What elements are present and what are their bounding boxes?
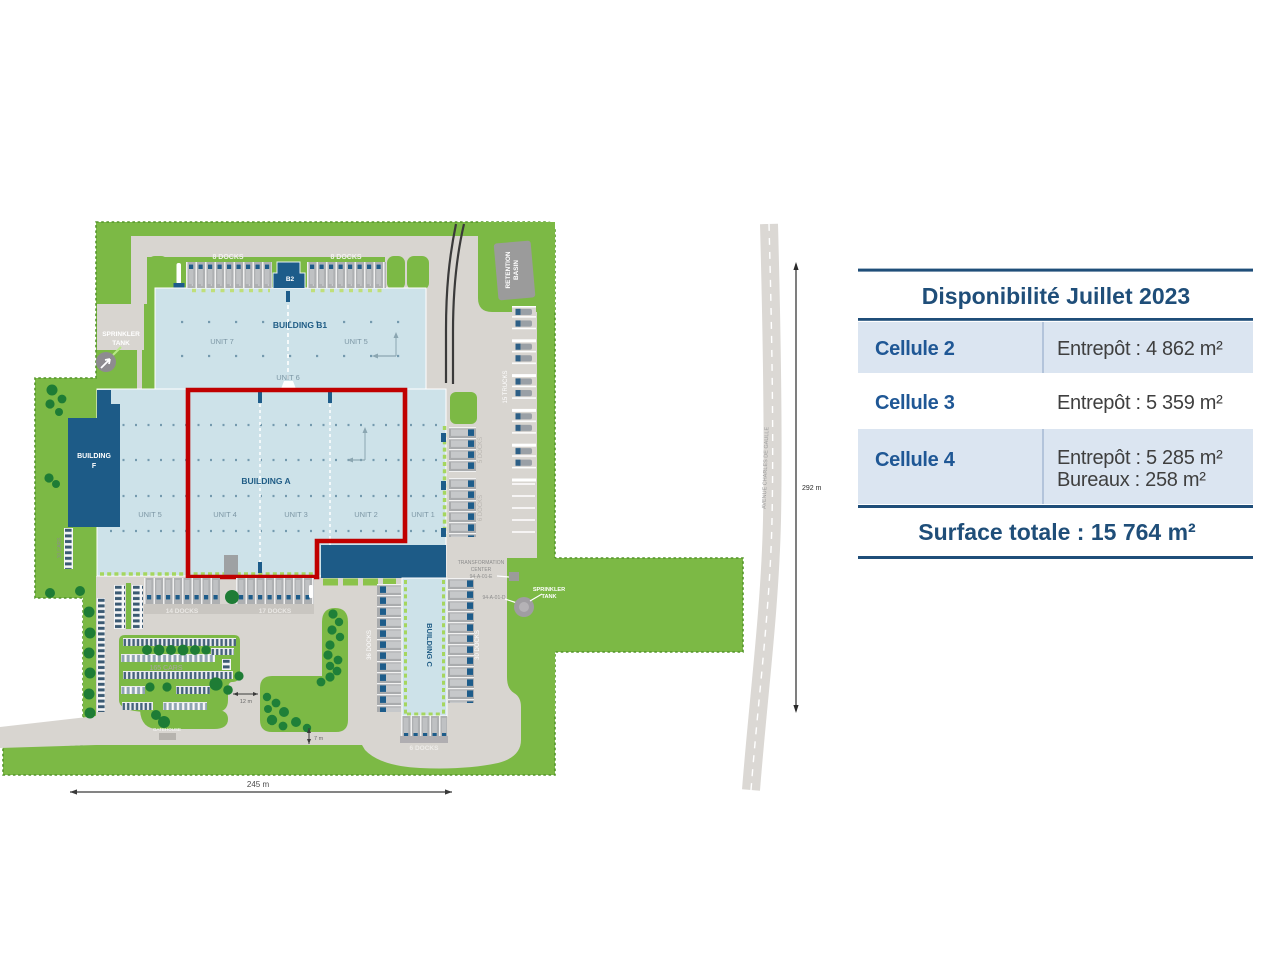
- svg-text:Entrepôt : 5 359 m²: Entrepôt : 5 359 m²: [1057, 392, 1223, 414]
- svg-text:292 m: 292 m: [802, 485, 822, 492]
- svg-text:UNIT 7: UNIT 7: [210, 337, 234, 346]
- svg-text:CENTER: CENTER: [471, 567, 492, 573]
- svg-text:8 DOCKS: 8 DOCKS: [330, 254, 361, 261]
- svg-text:BUILDING C: BUILDING C: [425, 623, 434, 667]
- svg-text:UNIT 2: UNIT 2: [354, 510, 378, 519]
- svg-text:UNIT 3: UNIT 3: [284, 510, 308, 519]
- svg-text:15 TRUCKS: 15 TRUCKS: [503, 371, 509, 404]
- svg-text:Entrepôt : 4 862 m²: Entrepôt : 4 862 m²: [1057, 338, 1223, 360]
- svg-text:B2: B2: [286, 276, 295, 283]
- svg-text:UNIT 1: UNIT 1: [411, 510, 435, 519]
- svg-text:BUILDING A: BUILDING A: [241, 476, 290, 486]
- svg-text:36 DOCKS: 36 DOCKS: [367, 630, 373, 660]
- svg-text:94-A-01-E: 94-A-01-E: [470, 574, 493, 580]
- svg-text:245 m: 245 m: [247, 780, 270, 789]
- svg-text:6 DOCKS: 6 DOCKS: [410, 745, 440, 752]
- svg-text:94-A-01-D: 94-A-01-D: [482, 595, 505, 601]
- svg-text:7 m: 7 m: [314, 736, 324, 742]
- svg-text:UNIT 5: UNIT 5: [138, 510, 162, 519]
- svg-text:10 CARS: 10 CARS: [57, 537, 63, 559]
- svg-text:5 DOCKS: 5 DOCKS: [478, 437, 484, 463]
- svg-text:Cellule 3: Cellule 3: [875, 392, 955, 414]
- svg-text:SPRINKLER: SPRINKLER: [533, 587, 565, 593]
- svg-text:GATEHOUSE: GATEHOUSE: [153, 727, 181, 732]
- svg-text:30 DOCKS: 30 DOCKS: [475, 630, 481, 660]
- svg-text:UNIT 5: UNIT 5: [344, 337, 368, 346]
- svg-text:RETENTION: RETENTION: [505, 251, 512, 288]
- svg-text:6 DOCKS: 6 DOCKS: [478, 495, 484, 521]
- svg-text:UNIT 6: UNIT 6: [276, 373, 300, 382]
- svg-text:BUILDING: BUILDING: [77, 453, 111, 460]
- svg-text:UNIT 4: UNIT 4: [213, 510, 237, 519]
- svg-text:12 m: 12 m: [240, 699, 253, 705]
- svg-text:TANK: TANK: [112, 340, 130, 347]
- svg-text:Cellule 2: Cellule 2: [875, 338, 955, 360]
- svg-text:TRANSFORMATION: TRANSFORMATION: [458, 560, 505, 566]
- svg-text:SPRINKLER: SPRINKLER: [102, 331, 140, 338]
- svg-text:17 DOCKS: 17 DOCKS: [259, 608, 292, 615]
- svg-text:165 CARS: 165 CARS: [149, 665, 182, 672]
- svg-text:Entrepôt : 5 285 m²: Entrepôt : 5 285 m²: [1057, 447, 1223, 469]
- svg-text:Cellule 4: Cellule 4: [875, 449, 956, 471]
- svg-text:BASIN: BASIN: [513, 260, 520, 280]
- svg-text:Bureaux : 258 m²: Bureaux : 258 m²: [1057, 469, 1206, 491]
- svg-text:Surface totale : 15 764 m²: Surface totale : 15 764 m²: [918, 519, 1196, 545]
- svg-text:BUILDING B1: BUILDING B1: [273, 320, 328, 330]
- svg-text:F: F: [92, 463, 97, 470]
- svg-text:8 DOCKS: 8 DOCKS: [212, 254, 243, 261]
- svg-text:TANK: TANK: [541, 594, 556, 600]
- svg-text:14 DOCKS: 14 DOCKS: [166, 608, 199, 615]
- svg-text:Disponibilité Juillet 2023: Disponibilité Juillet 2023: [922, 283, 1190, 309]
